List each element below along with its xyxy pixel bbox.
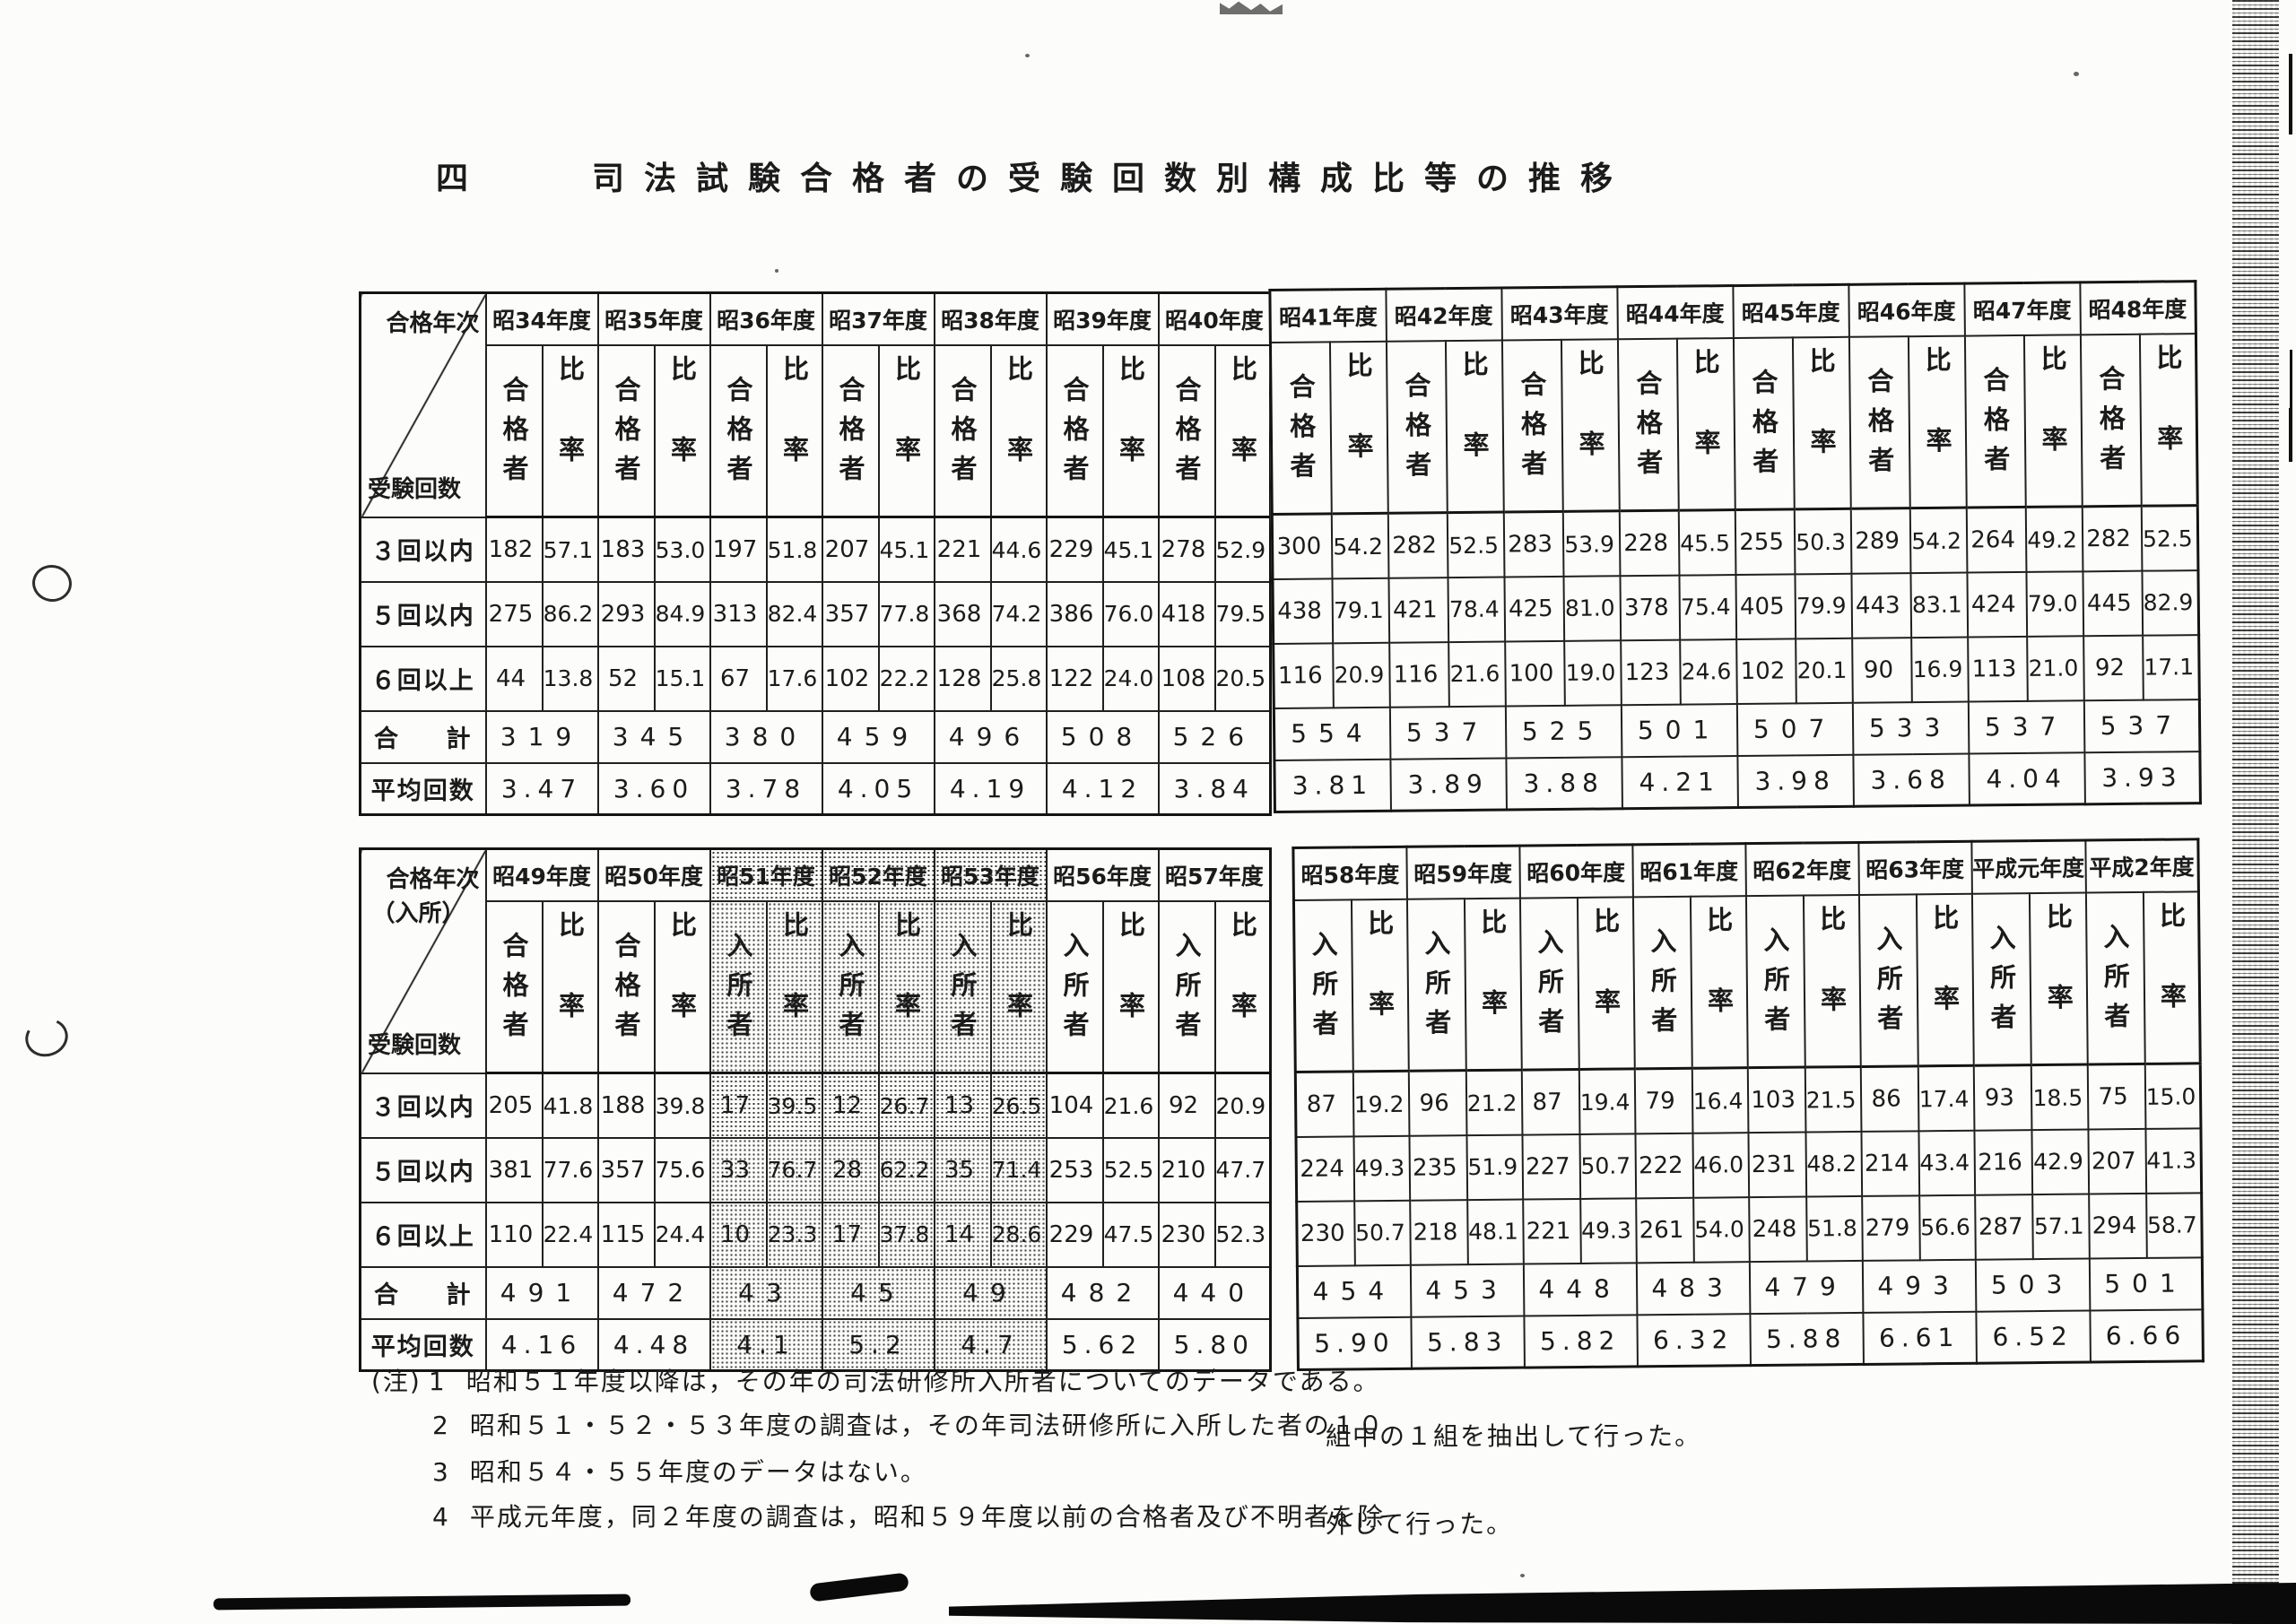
row-label-average: 平均回数 bbox=[361, 763, 486, 815]
note-text: 昭和５１年度以降は，その年の司法研修所入所者についてのデータである。 bbox=[466, 1367, 1380, 1396]
cell-rate: 82.9 bbox=[2142, 570, 2199, 636]
cell-count: 86 bbox=[1860, 1066, 1918, 1132]
col-head-count: 入所者 bbox=[1632, 896, 1692, 1069]
year-header: 昭48年度 bbox=[2080, 282, 2196, 334]
cell-count: 28 bbox=[822, 1138, 879, 1203]
col-head-count: 合格者 bbox=[1617, 338, 1678, 511]
table-corner-header: 合格年次（入所）受験回数 bbox=[361, 849, 486, 1073]
cell-count: 128 bbox=[935, 647, 991, 711]
cell-count: 108 bbox=[1159, 647, 1215, 711]
year-header: 昭62年度 bbox=[1745, 842, 1859, 895]
cell-rate: 44.6 bbox=[991, 517, 1047, 582]
col-head-rate: 比率 bbox=[2023, 334, 2082, 508]
cell-rate: 47.5 bbox=[1103, 1203, 1159, 1267]
cell-average: 3.98 bbox=[1737, 755, 1854, 808]
cell-count: 275 bbox=[486, 582, 543, 647]
cell-average: 4.05 bbox=[822, 763, 935, 815]
note-2-continuation: 組中の１組を抽出して行った。 bbox=[1326, 1417, 1701, 1453]
col-head-count: 合格者 bbox=[822, 345, 879, 517]
cell-rate: 45.5 bbox=[1678, 510, 1735, 576]
cell-count: 224 bbox=[1296, 1136, 1354, 1202]
cell-total: 319 bbox=[486, 711, 598, 763]
cell-total: 493 bbox=[1862, 1260, 1976, 1313]
table2-right-grid: 昭58年度昭59年度昭60年度昭61年度昭62年度昭63年度平成元年度平成2年度… bbox=[1291, 838, 2205, 1371]
note-text: 昭和５１・５２・５３年度の調査は，その年司法研修所に入所した者の１０ bbox=[470, 1411, 1385, 1440]
cell-total: 479 bbox=[1749, 1261, 1863, 1314]
cell-count: 182 bbox=[486, 517, 543, 582]
cell-count: 255 bbox=[1735, 509, 1795, 575]
cell-rate: 56.6 bbox=[1919, 1195, 1976, 1261]
cell-count: 381 bbox=[486, 1138, 543, 1203]
cell-total: 508 bbox=[1047, 711, 1159, 763]
cell-rate: 78.4 bbox=[1448, 577, 1505, 642]
cell-total: 525 bbox=[1505, 705, 1622, 758]
cell-rate: 77.6 bbox=[543, 1138, 598, 1203]
note-mark: (注) bbox=[371, 1367, 422, 1396]
cell-total: 496 bbox=[935, 711, 1047, 763]
col-head-count: 合格者 bbox=[486, 901, 543, 1073]
scan-bottom-streak bbox=[213, 1594, 631, 1611]
cell-count: 230 bbox=[1159, 1203, 1215, 1267]
cell-average: 4.04 bbox=[1969, 752, 2085, 805]
cell-count: 12 bbox=[822, 1073, 879, 1138]
cell-total: 380 bbox=[710, 711, 822, 763]
col-head-count: 合格者 bbox=[1964, 334, 2025, 508]
cell-count: 123 bbox=[1621, 639, 1681, 705]
col-head-rate: 比率 bbox=[1103, 345, 1159, 517]
cell-count: 210 bbox=[1159, 1138, 1215, 1203]
cell-rate: 57.1 bbox=[543, 517, 598, 582]
cell-rate: 42.9 bbox=[2031, 1129, 2088, 1194]
cell-count: 386 bbox=[1047, 582, 1103, 647]
cell-count: 90 bbox=[1852, 638, 1912, 703]
cell-rate: 16.9 bbox=[1911, 637, 1969, 702]
table1-right-grid: 昭41年度昭42年度昭43年度昭44年度昭45年度昭46年度昭47年度昭48年度… bbox=[1268, 280, 2202, 813]
cell-count: 17 bbox=[710, 1073, 767, 1138]
cell-rate: 75.4 bbox=[1679, 575, 1736, 640]
cell-count: 52 bbox=[598, 647, 655, 711]
col-head-count: 合格者 bbox=[935, 345, 991, 517]
cell-count: 221 bbox=[1523, 1199, 1581, 1264]
cell-count: 230 bbox=[1297, 1201, 1355, 1266]
note-3: 3昭和５４・５５年度のデータはない。 bbox=[432, 1453, 927, 1489]
cell-total: 345 bbox=[598, 711, 710, 763]
cell-rate: 81.0 bbox=[1563, 576, 1621, 641]
cell-total: 503 bbox=[1975, 1258, 2090, 1311]
cell-average: 6.32 bbox=[1637, 1314, 1751, 1367]
table1-left-section: 合格年次受験回数昭34年度昭35年度昭36年度昭37年度昭38年度昭39年度昭4… bbox=[359, 291, 1272, 816]
cell-count: 228 bbox=[1619, 510, 1679, 576]
cell-count: 283 bbox=[1503, 512, 1563, 578]
year-header: 昭61年度 bbox=[1632, 844, 1746, 897]
year-header: 昭56年度 bbox=[1047, 849, 1159, 901]
cell-count: 261 bbox=[1636, 1198, 1694, 1264]
table2-right-section: 昭58年度昭59年度昭60年度昭61年度昭62年度昭63年度平成元年度平成2年度… bbox=[1291, 838, 2205, 1371]
col-head-rate: 比率 bbox=[655, 345, 710, 517]
scan-speck bbox=[2074, 72, 2079, 76]
cell-total: 482 bbox=[1047, 1267, 1159, 1319]
cell-total: 537 bbox=[1968, 700, 2084, 753]
cell-rate: 79.9 bbox=[1795, 574, 1852, 639]
cell-total: 526 bbox=[1159, 711, 1271, 763]
year-header: 昭51年度 bbox=[710, 849, 822, 901]
cell-count: 248 bbox=[1749, 1196, 1807, 1262]
year-header: 昭52年度 bbox=[822, 849, 935, 901]
cell-count: 278 bbox=[1159, 517, 1215, 582]
col-head-rate: 比率 bbox=[1351, 899, 1408, 1072]
cell-rate: 48.1 bbox=[1467, 1199, 1524, 1264]
cell-count: 289 bbox=[1850, 508, 1910, 574]
cell-rate: 20.9 bbox=[1215, 1073, 1271, 1138]
cell-count: 188 bbox=[598, 1073, 655, 1138]
cell-rate: 79.1 bbox=[1332, 578, 1389, 644]
cell-count: 35 bbox=[935, 1138, 991, 1203]
year-header: 昭38年度 bbox=[935, 293, 1047, 345]
col-head-count: 合格者 bbox=[1848, 336, 1909, 509]
cell-rate: 49.2 bbox=[2025, 507, 2083, 572]
cell-count: 104 bbox=[1047, 1073, 1103, 1138]
cell-rate: 71.4 bbox=[991, 1138, 1047, 1203]
cell-rate: 15.0 bbox=[2144, 1064, 2201, 1129]
cell-average: 3.60 bbox=[598, 763, 710, 815]
cell-average: 6.52 bbox=[1976, 1310, 2091, 1363]
cell-count: 96 bbox=[1408, 1071, 1466, 1136]
col-head-count: 入所者 bbox=[1519, 897, 1578, 1070]
table2-left-grid: 合格年次（入所）受験回数昭49年度昭50年度昭51年度昭52年度昭53年度昭56… bbox=[359, 847, 1272, 1372]
year-header: 昭34年度 bbox=[486, 293, 598, 345]
note-text: 平成元年度，同２年度の調査は，昭和５９年度以前の合格者及び不明者を除 bbox=[470, 1502, 1385, 1532]
scan-speck bbox=[1520, 1574, 1525, 1577]
cell-count: 10 bbox=[710, 1203, 767, 1267]
col-head-count: 合格者 bbox=[1270, 342, 1331, 515]
cell-count: 205 bbox=[486, 1073, 543, 1138]
col-head-rate: 比率 bbox=[991, 901, 1047, 1073]
cell-average: 3.47 bbox=[486, 763, 598, 815]
scan-edge-mark bbox=[2289, 408, 2292, 462]
cell-count: 425 bbox=[1504, 577, 1564, 642]
col-head-rate: 比率 bbox=[1803, 894, 1860, 1067]
col-head-rate: 比率 bbox=[1908, 335, 1966, 508]
cell-average: 5.83 bbox=[1411, 1316, 1525, 1368]
cell-rate: 49.3 bbox=[1353, 1136, 1410, 1202]
cell-count: 313 bbox=[710, 582, 767, 647]
cell-rate: 83.1 bbox=[1910, 572, 1968, 638]
cell-total: 45 bbox=[822, 1267, 935, 1319]
cell-average: 3.84 bbox=[1159, 763, 1271, 815]
cell-count: 279 bbox=[1862, 1195, 1920, 1261]
col-head-count: 入所者 bbox=[1047, 901, 1103, 1073]
cell-total: 554 bbox=[1274, 708, 1390, 760]
note-text: 昭和５４・５５年度のデータはない。 bbox=[470, 1457, 927, 1487]
col-head-count: 合格者 bbox=[598, 345, 655, 517]
year-header: 昭36年度 bbox=[710, 293, 822, 345]
cell-average: 3.68 bbox=[1853, 753, 1970, 806]
cell-total: 440 bbox=[1159, 1267, 1271, 1319]
cell-count: 293 bbox=[598, 582, 655, 647]
cell-total: 454 bbox=[1297, 1265, 1411, 1318]
year-header: 平成2年度 bbox=[2085, 839, 2199, 892]
cell-total: 448 bbox=[1523, 1263, 1637, 1316]
col-head-rate: 比率 bbox=[1329, 341, 1387, 514]
cell-count: 102 bbox=[822, 647, 879, 711]
cell-total: 49 bbox=[935, 1267, 1047, 1319]
cell-rate: 45.1 bbox=[1103, 517, 1159, 582]
cell-count: 92 bbox=[1159, 1073, 1215, 1138]
cell-rate: 52.3 bbox=[1215, 1203, 1271, 1267]
note-4-continuation: 外して行った。 bbox=[1326, 1505, 1513, 1541]
col-head-count: 合格者 bbox=[2080, 334, 2141, 507]
note-number: 1 bbox=[429, 1367, 447, 1396]
cell-rate: 39.8 bbox=[655, 1073, 710, 1138]
note-1: (注)1昭和５１年度以降は，その年の司法研修所入所者についてのデータである。 bbox=[371, 1362, 1380, 1398]
cell-rate: 23.3 bbox=[767, 1203, 822, 1267]
note-4: 4平成元年度，同２年度の調査は，昭和５９年度以前の合格者及び不明者を除 bbox=[432, 1498, 1385, 1533]
col-head-rate: 比率 bbox=[655, 901, 710, 1073]
cell-rate: 24.4 bbox=[655, 1203, 710, 1267]
corner-label-top: 合格年次 bbox=[386, 305, 479, 338]
table1-right-section: 昭41年度昭42年度昭43年度昭44年度昭45年度昭46年度昭47年度昭48年度… bbox=[1268, 280, 2202, 813]
cell-rate: 58.7 bbox=[2146, 1193, 2203, 1258]
cell-count: 368 bbox=[935, 582, 991, 647]
col-head-rate: 比率 bbox=[543, 901, 598, 1073]
cell-rate: 13.8 bbox=[543, 647, 598, 711]
cell-rate: 39.5 bbox=[767, 1073, 822, 1138]
cell-count: 14 bbox=[935, 1203, 991, 1267]
col-head-count: 合格者 bbox=[1047, 345, 1103, 517]
cell-count: 87 bbox=[1521, 1070, 1579, 1135]
col-head-count: 入所者 bbox=[822, 901, 879, 1073]
handwritten-circle-mark bbox=[21, 1013, 74, 1063]
cell-rate: 52.9 bbox=[1215, 517, 1271, 582]
cell-rate: 17.6 bbox=[767, 647, 822, 711]
col-head-count: 入所者 bbox=[1159, 901, 1215, 1073]
col-head-rate: 比率 bbox=[1445, 340, 1503, 513]
cell-rate: 26.5 bbox=[991, 1073, 1047, 1138]
col-head-rate: 比率 bbox=[879, 901, 935, 1073]
cell-rate: 18.5 bbox=[2031, 1064, 2088, 1130]
cell-rate: 54.0 bbox=[1693, 1197, 1750, 1263]
cell-count: 67 bbox=[710, 647, 767, 711]
cell-count: 115 bbox=[598, 1203, 655, 1267]
col-head-count: 入所者 bbox=[935, 901, 991, 1073]
col-head-rate: 比率 bbox=[1215, 345, 1271, 517]
cell-rate: 51.8 bbox=[1806, 1196, 1863, 1262]
cell-average: 3.78 bbox=[710, 763, 822, 815]
col-head-count: 合格者 bbox=[1159, 345, 1215, 517]
cell-count: 227 bbox=[1522, 1134, 1580, 1200]
cell-rate: 20.1 bbox=[1796, 638, 1853, 704]
cell-rate: 52.5 bbox=[1103, 1138, 1159, 1203]
cell-rate: 86.2 bbox=[543, 582, 598, 647]
cell-average: 3.93 bbox=[2084, 751, 2201, 804]
col-head-count: 入所者 bbox=[1293, 899, 1352, 1073]
cell-count: 207 bbox=[822, 517, 879, 582]
cell-count: 122 bbox=[1047, 647, 1103, 711]
note-number: 4 bbox=[432, 1502, 450, 1532]
note-number: 2 bbox=[432, 1411, 450, 1440]
cell-count: 116 bbox=[1389, 642, 1449, 708]
col-head-rate: 比率 bbox=[1464, 898, 1521, 1071]
cell-rate: 46.0 bbox=[1692, 1133, 1749, 1198]
scan-bottom-streak bbox=[949, 1583, 2296, 1624]
year-header: 昭41年度 bbox=[1270, 289, 1387, 342]
year-header: 昭42年度 bbox=[1386, 288, 1502, 341]
col-head-rate: 比率 bbox=[1690, 896, 1747, 1069]
cell-rate: 74.2 bbox=[991, 582, 1047, 647]
cell-count: 443 bbox=[1851, 573, 1911, 638]
col-head-rate: 比率 bbox=[767, 901, 822, 1073]
cell-count: 197 bbox=[710, 517, 767, 582]
cell-count: 300 bbox=[1272, 514, 1332, 579]
col-head-count: 入所者 bbox=[710, 901, 767, 1073]
row-label-total: 合 計 bbox=[361, 711, 486, 763]
cell-total: 537 bbox=[1389, 706, 1506, 759]
year-header: 昭57年度 bbox=[1159, 849, 1271, 901]
cell-count: 75 bbox=[2087, 1064, 2145, 1130]
col-head-rate: 比率 bbox=[2030, 892, 2087, 1065]
cell-rate: 50.7 bbox=[1354, 1201, 1411, 1266]
year-header: 平成元年度 bbox=[1971, 840, 2086, 893]
cell-count: 229 bbox=[1047, 517, 1103, 582]
cell-rate: 54.2 bbox=[1909, 508, 1967, 573]
cell-rate: 41.8 bbox=[543, 1073, 598, 1138]
cell-rate: 17.1 bbox=[2143, 635, 2200, 700]
cell-count: 424 bbox=[1967, 572, 2027, 638]
cell-count: 79 bbox=[1634, 1069, 1692, 1134]
cell-rate: 52.5 bbox=[1447, 512, 1504, 578]
row-label: ６回以上 bbox=[361, 1203, 486, 1267]
col-head-count: 入所者 bbox=[1406, 899, 1465, 1072]
cell-rate: 15.1 bbox=[655, 647, 710, 711]
year-header: 昭44年度 bbox=[1617, 286, 1734, 339]
year-header: 昭45年度 bbox=[1733, 284, 1849, 337]
cell-rate: 50.7 bbox=[1579, 1133, 1636, 1199]
cell-total: 501 bbox=[1621, 704, 1737, 757]
col-head-rate: 比率 bbox=[2143, 891, 2200, 1064]
cell-count: 438 bbox=[1273, 578, 1333, 644]
cell-count: 87 bbox=[1295, 1072, 1353, 1137]
cell-rate: 75.6 bbox=[655, 1138, 710, 1203]
col-head-count: 入所者 bbox=[1971, 893, 2031, 1066]
col-head-rate: 比率 bbox=[879, 345, 935, 517]
cell-average: 6.66 bbox=[2090, 1309, 2204, 1362]
cell-count: 110 bbox=[486, 1203, 543, 1267]
cell-count: 214 bbox=[1861, 1131, 1919, 1196]
cell-total: 483 bbox=[1636, 1262, 1750, 1315]
cell-count: 17 bbox=[822, 1203, 879, 1267]
cell-count: 287 bbox=[1975, 1194, 2033, 1260]
scan-speck bbox=[1025, 54, 1030, 57]
year-header: 昭37年度 bbox=[822, 293, 935, 345]
cell-rate: 76.0 bbox=[1103, 582, 1159, 647]
col-head-rate: 比率 bbox=[1916, 893, 1973, 1066]
cell-count: 294 bbox=[2089, 1194, 2147, 1259]
col-head-count: 入所者 bbox=[1858, 894, 1918, 1067]
note-2: 2昭和５１・５２・５３年度の調査は，その年司法研修所に入所した者の１０ bbox=[432, 1406, 1385, 1442]
cell-total: 533 bbox=[1852, 701, 1969, 754]
cell-average: 6.61 bbox=[1863, 1312, 1977, 1365]
cell-count: 282 bbox=[2082, 507, 2142, 572]
cell-count: 405 bbox=[1735, 574, 1796, 639]
col-head-rate: 比率 bbox=[1792, 336, 1850, 509]
cell-rate: 49.3 bbox=[1580, 1198, 1637, 1264]
col-head-count: 入所者 bbox=[2085, 891, 2144, 1064]
cell-count: 235 bbox=[1409, 1135, 1467, 1201]
cell-count: 229 bbox=[1047, 1203, 1103, 1267]
cell-rate: 76.7 bbox=[767, 1138, 822, 1203]
col-head-count: 合格者 bbox=[598, 901, 655, 1073]
col-head-rate: 比率 bbox=[2139, 334, 2197, 507]
year-header: 昭40年度 bbox=[1159, 293, 1271, 345]
cell-rate: 54.2 bbox=[1331, 514, 1388, 579]
col-head-count: 合格者 bbox=[1733, 337, 1794, 510]
cell-total: 507 bbox=[1736, 703, 1853, 756]
cell-rate: 16.4 bbox=[1692, 1068, 1748, 1133]
corner-label-top: 合格年次 bbox=[386, 861, 479, 894]
table1-left-grid: 合格年次受験回数昭34年度昭35年度昭36年度昭37年度昭38年度昭39年度昭4… bbox=[359, 291, 1272, 816]
row-label-total: 合 計 bbox=[361, 1267, 486, 1319]
cell-rate: 41.3 bbox=[2145, 1128, 2202, 1194]
cell-rate: 21.2 bbox=[1465, 1070, 1522, 1135]
year-header: 昭49年度 bbox=[486, 849, 598, 901]
page-title: 四 司法試験合格者の受験回数別構成比等の推移 bbox=[436, 152, 1632, 199]
row-label: ５回以内 bbox=[361, 582, 486, 647]
cell-count: 92 bbox=[2083, 636, 2144, 701]
cell-average: 4.19 bbox=[935, 763, 1047, 815]
cell-count: 102 bbox=[1736, 638, 1796, 704]
year-header: 昭60年度 bbox=[1519, 845, 1633, 898]
cell-rate: 21.0 bbox=[2027, 636, 2084, 701]
cell-rate: 50.3 bbox=[1794, 509, 1851, 575]
cell-count: 264 bbox=[1966, 508, 2026, 573]
cell-rate: 26.7 bbox=[879, 1073, 935, 1138]
cell-rate: 57.1 bbox=[2032, 1194, 2089, 1259]
cell-rate: 19.4 bbox=[1578, 1069, 1635, 1134]
cell-rate: 22.2 bbox=[879, 647, 935, 711]
cell-count: 93 bbox=[1973, 1065, 2031, 1131]
cell-count: 33 bbox=[710, 1138, 767, 1203]
cell-count: 222 bbox=[1635, 1133, 1693, 1199]
cell-count: 183 bbox=[598, 517, 655, 582]
col-head-rate: 比率 bbox=[1676, 338, 1735, 511]
cell-rate: 37.8 bbox=[879, 1203, 935, 1267]
col-head-rate: 比率 bbox=[543, 345, 598, 517]
cell-count: 378 bbox=[1620, 575, 1680, 640]
scan-edge-mark bbox=[2289, 54, 2292, 135]
year-header: 昭46年度 bbox=[1848, 283, 1965, 336]
cell-count: 253 bbox=[1047, 1138, 1103, 1203]
cell-rate: 24.6 bbox=[1680, 639, 1737, 705]
cell-rate: 19.0 bbox=[1564, 640, 1622, 706]
cell-count: 357 bbox=[598, 1138, 655, 1203]
cell-count: 445 bbox=[2083, 571, 2143, 637]
handwritten-circle-mark bbox=[30, 562, 74, 604]
cell-rate: 21.6 bbox=[1103, 1073, 1159, 1138]
col-head-rate: 比率 bbox=[1215, 901, 1271, 1073]
col-head-rate: 比率 bbox=[767, 345, 822, 517]
cell-average: 5.88 bbox=[1750, 1313, 1864, 1366]
year-header: 昭43年度 bbox=[1501, 287, 1618, 340]
cell-count: 218 bbox=[1410, 1200, 1468, 1265]
cell-rate: 20.5 bbox=[1215, 647, 1271, 711]
cell-average: 3.88 bbox=[1506, 757, 1622, 810]
cell-count: 100 bbox=[1505, 641, 1565, 707]
cell-count: 44 bbox=[486, 647, 543, 711]
cell-count: 216 bbox=[1974, 1130, 2032, 1195]
cell-count: 418 bbox=[1159, 582, 1215, 647]
cell-rate: 19.2 bbox=[1352, 1072, 1409, 1137]
year-header: 昭35年度 bbox=[598, 293, 710, 345]
